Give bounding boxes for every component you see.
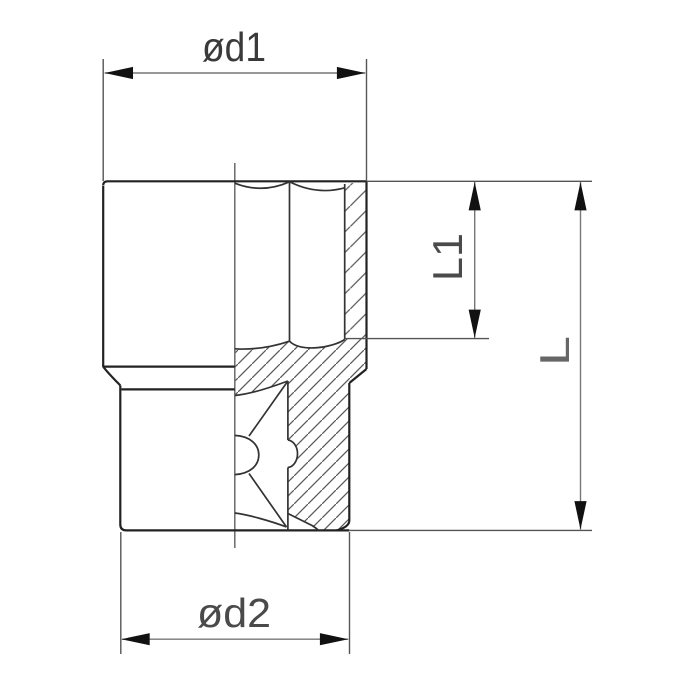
svg-text:L: L <box>531 336 578 366</box>
svg-text:L1: L1 <box>424 233 471 281</box>
svg-text:ød1: ød1 <box>202 24 266 70</box>
svg-text:ød2: ød2 <box>197 590 271 636</box>
